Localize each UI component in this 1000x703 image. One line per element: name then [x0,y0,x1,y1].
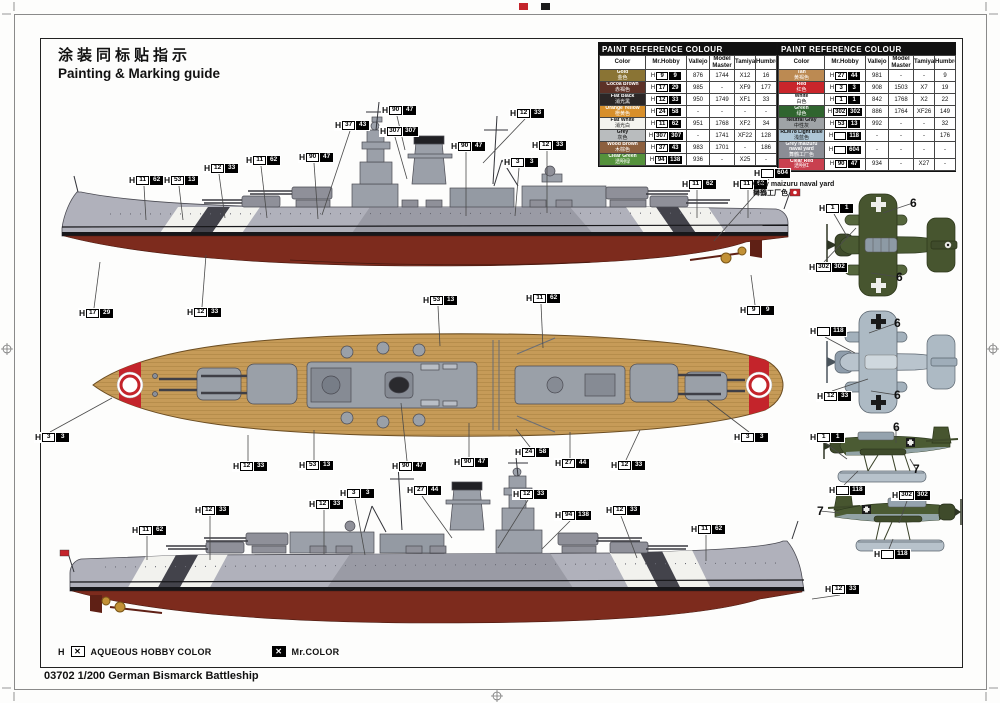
paint-callout: H5313 [422,295,458,306]
mrcolor-code: 47 [472,142,485,151]
hobby-prefix: H [651,73,655,79]
paint-row: Cocoa Brown赤褐色H1729985-XF9177 [600,82,777,94]
tamiya-code: - [914,70,935,82]
mrcolor-code: 1 [840,204,853,213]
hobby-prefix: H [299,153,305,162]
hobby-prefix: H [299,461,305,470]
column-header: ModelMaster [710,56,735,70]
hobby-prefix: H [830,97,834,103]
humbrol-code: - [935,158,956,170]
column-header: ModelMaster [889,56,914,70]
vallejo-code: - [687,130,710,142]
hobby-prefix: H [526,294,532,303]
tamiya-code: XF9 [735,82,756,94]
humbrol-code: 149 [935,106,956,118]
mrcolor-code: 1 [831,433,844,442]
mrcolor-code: 62 [267,156,280,165]
hobby-prefix: H [734,433,740,442]
mrcolor-code: 33 [553,141,566,150]
hobby-codes: H2458 [646,106,687,118]
hobby-prefix: H [740,306,746,315]
tamiya-code: X27 [914,158,935,170]
hobby-prefix: H [392,462,398,471]
tamiya-code: - [735,106,756,118]
vallejo-code: 934 [866,158,889,170]
color-swatch: Gold金色 [600,70,646,82]
hobby-prefix: H [555,511,561,520]
mrcolor-code: 44 [576,459,589,468]
aqueous-code: 1 [817,433,830,442]
mrcolor-box-icon: ✕ [272,646,286,657]
aqueous-code: 24 [656,108,668,116]
hobby-prefix: H [651,85,655,91]
paint-callout: H11 [809,432,845,443]
modelmaster-code: 1749 [710,94,735,106]
paint-callout: H1233 [203,163,239,174]
modelmaster-code: 1768 [710,118,735,130]
aqueous-code: 53 [171,176,184,185]
mrcolor-code: 138 [668,156,682,164]
paint-callout: H9047 [298,152,334,163]
hobby-prefix: H [830,161,834,167]
paint-row: Gold金色H998761744X1216 [600,70,777,82]
hobby-prefix: H [510,109,516,118]
vallejo-code: 950 [687,94,710,106]
vallejo-code: 886 [866,106,889,118]
paint-reference-table-right: PAINT REFERENCE COLOURColorMr.HobbyValle… [777,42,956,172]
hobby-codes: H118 [825,130,866,142]
mrcolor-code: 33 [254,462,267,471]
paint-callout: H1233 [824,584,860,595]
aqueous-code: 11 [136,176,149,185]
hobby-prefix: H [132,526,138,535]
table-title: PAINT REFERENCE COLOUR [599,43,776,55]
vallejo-code: 992 [866,118,889,130]
tamiya-code: - [914,118,935,130]
paint-row: Orange Yellow橙黄色H2458---- [600,106,777,118]
color-swatch: Green绿色 [779,106,825,118]
column-header: Vallejo [866,56,889,70]
aqueous-code: 12 [520,490,533,499]
column-header: Humbrol [935,56,956,70]
paint-callout: H2744 [406,485,442,496]
hobby-prefix: H [682,180,688,189]
aqueous-code: 12 [240,462,253,471]
mrcolor-code: 44 [428,486,441,495]
vallejo-code: 876 [687,70,710,82]
mrcolor-code: 47 [848,160,860,168]
paint-callout: H1233 [186,307,222,318]
modelmaster-code: - [889,118,914,130]
hobby-prefix: H [810,327,816,336]
aqueous-code: 11 [656,120,668,128]
paint-callout: H302302 [891,490,931,501]
humbrol-code: - [756,154,777,166]
vallejo-code: 981 [866,70,889,82]
mrcolor-code: 3 [56,433,69,442]
column-header: Mr.Hobby [646,56,687,70]
paint-callout: H1162 [131,525,167,536]
paint-callout: H1162 [245,155,281,166]
aqueous-code: 90 [461,458,474,467]
tamiya-code: XF2 [735,118,756,130]
aqueous-code: 9 [747,306,760,315]
vallejo-code: - [687,106,710,118]
hobby-prefix: H [825,585,831,594]
humbrol-code: 128 [756,130,777,142]
aqueous-code: 3 [42,433,55,442]
color-swatch: Flat White消光白 [600,118,646,130]
humbrol-code: - [756,106,777,118]
modelmaster-code: - [710,106,735,118]
hobby-prefix: H [830,73,834,79]
paint-callout: H1233 [816,391,852,402]
aqueous-code: 3 [741,433,754,442]
aqueous-code: 24 [522,448,535,457]
hobby-prefix: H [187,308,193,317]
aqueous-code: 53 [430,296,443,305]
paint-callout: H9047 [381,105,417,116]
hobby-prefix: H [809,263,815,272]
hobby-prefix: H [810,433,816,442]
tamiya-code: - [914,142,935,159]
plan-view-drawing [85,318,795,448]
paint-callout: H1233 [308,499,344,510]
paint-callout: H118 [873,549,911,560]
mrcolor-code: 33 [632,461,645,470]
hobby-prefix: H [649,133,653,139]
hobby-prefix: H [651,97,655,103]
paint-callout: H1233 [531,140,567,151]
hobby-prefix: H [380,127,386,136]
modelmaster-code: 1768 [889,94,914,106]
mrcolor-code: 33 [846,585,859,594]
hobby-codes: H3743 [646,142,687,154]
mrcolor-code: 13 [848,120,860,128]
paint-callout: H11 [818,203,854,214]
column-header: Color [600,56,646,70]
aqueous-code: 90 [399,462,412,471]
color-swatch: Cocoa Brown赤褐色 [600,82,646,94]
hobby-prefix: H [246,156,252,165]
paint-callout: H5313 [163,175,199,186]
mrcolor-code: 604 [775,169,790,178]
paint-row: Flat Black消光黑H12339501749XF133 [600,94,777,106]
hobby-prefix: H [407,486,413,495]
paint-callout: H33 [34,432,70,443]
mrcolor-code: 3 [361,489,374,498]
hobby-prefix: H [651,109,655,115]
hobby-codes: H1729 [646,82,687,94]
hobby-codes: H99 [646,70,687,82]
aqueous-code: 12 [316,500,329,509]
humbrol-code: 9 [935,70,956,82]
aqueous-code: 3 [347,489,360,498]
paint-row: RLM78 Light Blue浅蓝色H118---176 [779,130,956,142]
modelmaster-code: 1764 [889,106,914,118]
modelmaster-code: - [710,154,735,166]
hobby-prefix: H [606,506,612,515]
paint-callout: H94138 [554,510,592,521]
hobby-prefix: H [129,176,135,185]
aqueous-code: 9 [656,72,668,80]
aqueous-code: 1 [835,96,847,104]
paint-callout: H1162 [681,179,717,190]
hobby-prefix: H [382,106,388,115]
hobby-codes: H11 [825,94,866,106]
maizuru-note: Grey maizuru naval yard 舞鶴工厂色 [753,181,834,199]
mrcolor-code: 58 [669,108,681,116]
aqueous-code: 12 [618,461,631,470]
hobby-prefix: H [451,142,457,151]
humbrol-code: 22 [935,94,956,106]
modelmaster-code: - [889,142,914,159]
aqueous-code: 90 [835,160,847,168]
mrcolor-code: 118 [895,550,910,559]
paint-row: Neutral Gray中性灰H5313992--32 [779,118,956,130]
aqueous-code [881,550,894,559]
mrcolor-code: 62 [150,176,163,185]
mrcolor-code: 29 [100,309,113,318]
hobby-codes: H9047 [825,158,866,170]
mrcolor-code: 604 [847,146,861,154]
paint-callout: H9047 [453,457,489,468]
paint-reference-table-left: PAINT REFERENCE COLOURColorMr.HobbyValle… [598,42,777,167]
color-swatch: Clear Green透明绿 [600,154,646,166]
modelmaster-code: 1741 [710,130,735,142]
hobby-prefix: H [754,169,760,178]
mrcolor-code: 118 [847,132,861,140]
modelmaster-code: 1744 [710,70,735,82]
modelmaster-code: - [889,158,914,170]
maizuru-note-line2: 舞鶴工厂色 [753,190,834,199]
maizuru-note-line1: Grey maizuru naval yard [753,181,834,190]
hobby-prefix: H [651,145,655,151]
vallejo-code: 842 [866,94,889,106]
hobby-prefix: H [340,489,346,498]
mrcolor-code: 302 [915,491,930,500]
legend-aqueous-label: AQUEOUS HOBBY COLOR [91,647,212,657]
paint-callout: H9047 [391,461,427,472]
hobby-prefix: H [829,486,835,495]
hobby-prefix: H [830,85,834,91]
paint-callout: H33 [339,488,375,499]
aqueous-code [761,169,774,178]
paint-callout: H1233 [194,505,230,516]
aqueous-code: 27 [562,459,575,468]
color-swatch: Grey灰色 [600,130,646,142]
hobby-prefix: H [423,296,429,305]
decal-number-label: 6 [893,420,900,434]
hobby-prefix: H [532,141,538,150]
hobby-prefix: H [892,491,898,500]
vallejo-code: 936 [687,154,710,166]
hobby-prefix: H [817,392,823,401]
aqueous-code: 1 [826,204,839,213]
decal-number-label: 7 [817,504,824,518]
paint-row: White白色H118421768X222 [779,94,956,106]
mrcolor-code: 62 [153,526,166,535]
aqueous-code: 27 [835,72,847,80]
mrcolor-code: 62 [712,525,725,534]
mrcolor-code: 302 [848,108,862,116]
legend-mrcolor-label: Mr.COLOR [292,647,340,657]
aqueous-code: 12 [824,392,837,401]
mrcolor-code: 3 [755,433,768,442]
aqueous-code: 90 [306,153,319,162]
mrcolor-code: 43 [356,121,369,130]
mrcolor-code: 33 [531,109,544,118]
color-swatch: Wood Brown木棕色 [600,142,646,154]
paint-callout: H1233 [610,460,646,471]
aqueous-code: 90 [389,106,402,115]
aqueous-code [834,146,846,154]
mrcolor-code: 47 [413,462,426,471]
hobby-prefix: H [79,309,85,318]
modelmaster-code: - [889,70,914,82]
paint-callout: H33 [733,432,769,443]
modelmaster-code: - [710,82,735,94]
paint-callout: H118 [828,485,866,496]
modelmaster-code: - [889,130,914,142]
humbrol-code: 177 [756,82,777,94]
color-swatch: White白色 [779,94,825,106]
paint-row: Green绿色H3023028861764XF26149 [779,106,956,118]
paint-callout: H1233 [512,489,548,500]
aqueous-code: 53 [306,461,319,470]
hobby-codes: H604 [825,142,866,159]
aqueous-code: 3 [511,158,524,167]
paint-callout: H1233 [605,505,641,516]
paint-row: Clear Red透明红H9047934-X27- [779,158,956,170]
vallejo-code: 908 [866,82,889,94]
aqueous-code: 94 [655,156,667,164]
painting-guide-page: 涂装同标贴指示 Painting & Marking guide PAINT R… [0,0,1000,703]
hobby-prefix: H [555,459,561,468]
aqueous-code: 302 [833,108,847,116]
mrcolor-code: 33 [534,490,547,499]
aircraft-top-view-lightblue [815,305,965,430]
aqueous-code: 37 [342,121,355,130]
paint-callout: H118 [809,326,847,337]
humbrol-code: 33 [756,94,777,106]
hobby-prefix: H [611,461,617,470]
vallejo-code: - [866,142,889,159]
aqueous-code: 17 [86,309,99,318]
mrcolor-code: 47 [403,106,416,115]
print-color-chip-black [541,3,550,10]
paint-row: Wood Brown木棕色H37439831701-186 [600,142,777,154]
aqueous-code: 302 [816,263,831,272]
column-header: Mr.Hobby [825,56,866,70]
color-swatch: RLM78 Light Blue浅蓝色 [779,130,825,142]
color-swatch: Tan黄褐色 [779,70,825,82]
aqueous-code: 12 [613,506,626,515]
paint-callout: H302302 [808,262,848,273]
mrcolor-code: 138 [576,511,591,520]
mrcolor-code: 33 [838,392,851,401]
tamiya-code: X2 [914,94,935,106]
humbrol-code: 19 [935,82,956,94]
color-swatch: Flat Black消光黑 [600,94,646,106]
vallejo-code: - [866,130,889,142]
paint-callout: H307307 [379,126,419,137]
aqueous-code: 307 [654,132,668,140]
paint-row: Red红色H339081503X719 [779,82,956,94]
mrcolor-code: 58 [536,448,549,457]
table-title: PAINT REFERENCE COLOUR [778,43,955,55]
decal-number-label: 6 [894,388,901,402]
decal-number-label: 6 [896,270,903,284]
mrcolor-code: 9 [669,72,681,80]
hobby-prefix: H [828,109,832,115]
paint-callout: H2744 [554,458,590,469]
column-header: Humbrol [756,56,777,70]
mrcolor-code: 302 [832,263,847,272]
hobby-prefix: H [309,500,315,509]
paint-callout: H9047 [450,141,486,152]
print-color-chip-red [519,3,528,10]
hobby-prefix: H [829,133,833,139]
hobby-codes: H1162 [646,118,687,130]
mrcolor-code: 33 [330,500,343,509]
tamiya-code: - [735,142,756,154]
color-swatch: Grey maizuru naval yard舞鶴工厂色 [779,142,825,159]
mrcolor-code: 1 [848,96,860,104]
mrcolor-code: 118 [831,327,846,336]
hobby-codes: H302302 [825,106,866,118]
hobby-prefix: H [195,506,201,515]
aqueous-code: 12 [202,506,215,515]
aqueous-code: 94 [562,511,575,520]
mrcolor-code: 118 [850,486,865,495]
paint-callout: H99 [739,305,775,316]
decal-number-label: 7 [913,462,920,476]
hobby-codes: H307307 [646,130,687,142]
humbrol-code: 34 [756,118,777,130]
mrcolor-code: 43 [669,144,681,152]
mrcolor-code: 307 [403,127,418,136]
hobby-prefix: H [650,157,654,163]
modelmaster-code: 1503 [889,82,914,94]
mrcolor-code: 3 [525,158,538,167]
tamiya-code: - [914,130,935,142]
column-header: Tamiya [735,56,756,70]
vallejo-code: 983 [687,142,710,154]
color-swatch: Neutral Gray中性灰 [779,118,825,130]
hobby-codes: H33 [825,82,866,94]
hobby-codes: H94138 [646,154,687,166]
aqueous-code: 3 [835,84,847,92]
paint-callout: H1233 [509,108,545,119]
paint-callout: H3743 [334,120,370,131]
hobby-prefix: H [829,147,833,153]
mrcolor-code: 47 [320,153,333,162]
aqueous-code: 11 [139,526,152,535]
hobby-prefix: H [515,448,521,457]
legend-h: H [58,647,65,657]
humbrol-code: - [935,142,956,159]
hobby-prefix: H [691,525,697,534]
hobby-codes: H5313 [825,118,866,130]
aqueous-code: 17 [656,84,668,92]
paint-system-legend: H ✕ AQUEOUS HOBBY COLOR ✕ Mr.COLOR [58,646,339,657]
aqueous-code: 11 [689,180,702,189]
mrcolor-code: 33 [627,506,640,515]
paint-row: Grey maizuru naval yard舞鶴工厂色H604---- [779,142,956,159]
hobby-codes: H2744 [825,70,866,82]
mrcolor-code: 62 [669,120,681,128]
